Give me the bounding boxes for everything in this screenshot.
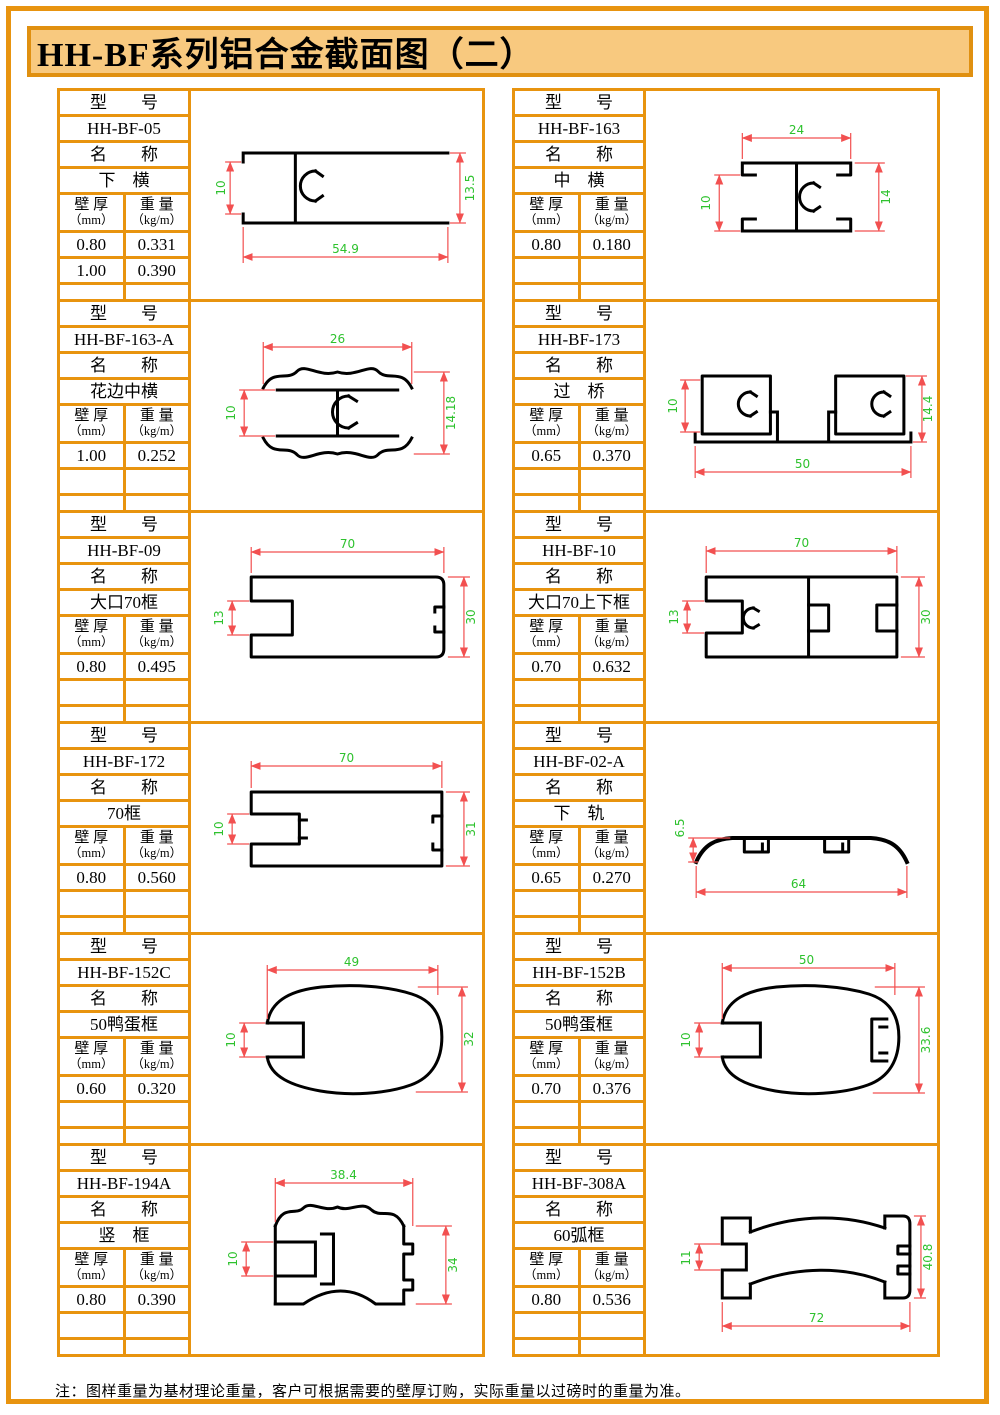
model-value: HH-BF-163-A	[60, 328, 188, 354]
spec-header-row: 壁 厚（mm） 重 量（kg/m）	[60, 406, 188, 444]
cross-section-hh-bf-152c: 49 10 32	[191, 935, 482, 1143]
cross-section-hh-bf-05: 10 13.5 54.9	[191, 91, 482, 299]
profile-cell-hh-bf-09: 型 号 HH-BF-09 名 称 大口70框 壁 厚（mm） 重 量（kg/m）…	[57, 510, 485, 724]
dim-bottom: 72	[809, 1311, 824, 1325]
weight-header: 重 量（kg/m）	[126, 1250, 189, 1285]
data-row: 0.800.331	[60, 233, 188, 259]
model-label: 型 号	[515, 513, 643, 539]
model-label: 型 号	[60, 724, 188, 750]
spec-table: 型 号 HH-BF-10 名 称 大口70上下框 壁 厚（mm） 重 量（kg/…	[515, 513, 646, 721]
spec-header-row: 壁 厚（mm） 重 量（kg/m）	[60, 1250, 188, 1288]
cross-section-hh-bf-172: 70 10 31	[191, 724, 482, 932]
profile-drawing: 6.5 64	[646, 724, 937, 932]
spec-table: 型 号 HH-BF-172 名 称 70框 壁 厚（mm） 重 量（kg/m） …	[60, 724, 191, 932]
dim-right: 14.18	[444, 396, 458, 430]
profile-cell-hh-bf-173: 型 号 HH-BF-173 名 称 过 桥 壁 厚（mm） 重 量（kg/m） …	[512, 299, 940, 513]
profile-cell-hh-bf-163-a: 型 号 HH-BF-163-A 名 称 花边中横 壁 厚（mm） 重 量（kg/…	[57, 299, 485, 513]
profile-cell-hh-bf-163: 型 号 HH-BF-163 名 称 中 横 壁 厚（mm） 重 量（kg/m） …	[512, 88, 940, 302]
spec-header-row: 壁 厚（mm） 重 量（kg/m）	[515, 195, 643, 233]
model-label: 型 号	[515, 935, 643, 961]
cross-section-hh-bf-02-a: 6.5 64	[646, 724, 937, 932]
data-row-empty	[515, 285, 643, 299]
dim-top: 70	[339, 751, 354, 765]
model-label: 型 号	[515, 724, 643, 750]
data-row	[515, 470, 643, 496]
model-value: HH-BF-152C	[60, 961, 188, 987]
data-row: 0.600.320	[60, 1077, 188, 1103]
dim-right: 30	[919, 609, 933, 624]
dim-left: 10	[699, 195, 713, 210]
dim-right: 14.4	[921, 396, 935, 423]
dim-left: 10	[212, 821, 226, 836]
thickness-header: 壁 厚（mm）	[515, 195, 581, 230]
model-value: HH-BF-308A	[515, 1172, 643, 1198]
weight-header: 重 量（kg/m）	[581, 617, 644, 652]
dim-top: 38.4	[330, 1168, 357, 1182]
data-row: 1.000.252	[60, 444, 188, 470]
spec-header-row: 壁 厚（mm） 重 量（kg/m）	[515, 617, 643, 655]
data-row-empty	[60, 918, 188, 932]
name-label: 名 称	[515, 354, 643, 380]
spec-header-row: 壁 厚（mm） 重 量（kg/m）	[60, 195, 188, 233]
name-label: 名 称	[60, 565, 188, 591]
catalog-page: HH-BF系列铝合金截面图（二） 型 号 HH-BF-05 名 称 下 横 壁 …	[0, 0, 1000, 1415]
weight-header: 重 量（kg/m）	[581, 1250, 644, 1285]
data-row-empty	[60, 707, 188, 721]
weight-header: 重 量（kg/m）	[126, 195, 189, 230]
data-row-empty	[60, 1129, 188, 1143]
name-value: 大口70上下框	[515, 591, 643, 617]
dim-left: 10	[679, 1032, 693, 1047]
spec-header-row: 壁 厚（mm） 重 量（kg/m）	[515, 1250, 643, 1288]
dim-top: 50	[799, 953, 814, 967]
dim-left: 10	[224, 405, 238, 420]
cross-section-hh-bf-09: 70 13 30	[191, 513, 482, 721]
data-row	[60, 1314, 188, 1340]
spec-header-row: 壁 厚（mm） 重 量（kg/m）	[60, 1039, 188, 1077]
model-label: 型 号	[60, 935, 188, 961]
cross-section-hh-bf-10: 70 13 30	[646, 513, 937, 721]
data-row	[60, 470, 188, 496]
profile-drawing: 70 13 30	[646, 513, 937, 721]
profile-drawing: 49 10 32	[191, 935, 482, 1143]
cross-section-hh-bf-152b: 50 10 33.6	[646, 935, 937, 1143]
model-value: HH-BF-163	[515, 117, 643, 143]
dim-bottom: 64	[791, 877, 806, 891]
name-value: 70框	[60, 802, 188, 828]
dim-left: 10	[226, 1251, 240, 1266]
profile-cell-hh-bf-194a: 型 号 HH-BF-194A 名 称 竖 框 壁 厚（mm） 重 量（kg/m）…	[57, 1143, 485, 1357]
thickness-header: 壁 厚（mm）	[515, 1250, 581, 1285]
thickness-header: 壁 厚（mm）	[60, 828, 126, 863]
model-value: HH-BF-10	[515, 539, 643, 565]
data-row: 0.800.495	[60, 655, 188, 681]
model-value: HH-BF-152B	[515, 961, 643, 987]
footer-note: 注：图样重量为基材理论重量，客户可根据需要的壁厚订购，实际重量以过磅时的重量为准…	[55, 1380, 691, 1401]
data-row	[60, 1103, 188, 1129]
data-row-empty	[515, 1340, 643, 1354]
spec-table: 型 号 HH-BF-152B 名 称 50鸭蛋框 壁 厚（mm） 重 量（kg/…	[515, 935, 646, 1143]
name-value: 中 横	[515, 169, 643, 195]
name-label: 名 称	[60, 1198, 188, 1224]
data-row: 0.800.536	[515, 1288, 643, 1314]
dim-right: 33.6	[919, 1027, 933, 1054]
spec-table: 型 号 HH-BF-194A 名 称 竖 框 壁 厚（mm） 重 量（kg/m）…	[60, 1146, 191, 1354]
data-row: 0.650.370	[515, 444, 643, 470]
grid-row: 型 号 HH-BF-163-A 名 称 花边中横 壁 厚（mm） 重 量（kg/…	[57, 299, 940, 513]
spec-table: 型 号 HH-BF-05 名 称 下 横 壁 厚（mm） 重 量（kg/m） 0…	[60, 91, 191, 299]
profile-drawing: 24 10 14	[646, 91, 937, 299]
profile-cell-hh-bf-172: 型 号 HH-BF-172 名 称 70框 壁 厚（mm） 重 量（kg/m） …	[57, 721, 485, 935]
name-label: 名 称	[515, 1198, 643, 1224]
name-label: 名 称	[60, 354, 188, 380]
spec-header-row: 壁 厚（mm） 重 量（kg/m）	[515, 1039, 643, 1077]
weight-header: 重 量（kg/m）	[581, 828, 644, 863]
dim-top: 70	[340, 537, 355, 551]
data-row	[515, 1314, 643, 1340]
spec-header-row: 壁 厚（mm） 重 量（kg/m）	[60, 617, 188, 655]
model-label: 型 号	[60, 1146, 188, 1172]
dim-left: 10	[224, 1032, 238, 1047]
profile-drawing: 38.4 10 34	[191, 1146, 482, 1354]
grid-row: 型 号 HH-BF-152C 名 称 50鸭蛋框 壁 厚（mm） 重 量（kg/…	[57, 932, 940, 1146]
data-row-empty	[60, 285, 188, 299]
name-label: 名 称	[515, 776, 643, 802]
profile-cell-hh-bf-308a: 型 号 HH-BF-308A 名 称 60弧框 壁 厚（mm） 重 量（kg/m…	[512, 1143, 940, 1357]
model-value: HH-BF-09	[60, 539, 188, 565]
grid-row: 型 号 HH-BF-05 名 称 下 横 壁 厚（mm） 重 量（kg/m） 0…	[57, 88, 940, 302]
name-label: 名 称	[60, 143, 188, 169]
dim-right: 40.8	[921, 1244, 935, 1271]
model-value: HH-BF-173	[515, 328, 643, 354]
thickness-header: 壁 厚（mm）	[515, 406, 581, 441]
data-row: 0.700.632	[515, 655, 643, 681]
cross-section-hh-bf-194a: 38.4 10 34	[191, 1146, 482, 1354]
profile-cell-hh-bf-02-a: 型 号 HH-BF-02-A 名 称 下 轨 壁 厚（mm） 重 量（kg/m）…	[512, 721, 940, 935]
cross-section-hh-bf-308a: 11 40.8 72	[646, 1146, 937, 1354]
dim-top: 49	[344, 955, 359, 969]
name-value: 50鸭蛋框	[60, 1013, 188, 1039]
dim-left: 11	[679, 1250, 693, 1265]
model-label: 型 号	[515, 1146, 643, 1172]
spec-header-row: 壁 厚（mm） 重 量（kg/m）	[515, 828, 643, 866]
weight-header: 重 量（kg/m）	[126, 1039, 189, 1074]
name-value: 下 横	[60, 169, 188, 195]
dim-bottom: 54.9	[332, 242, 359, 256]
cross-section-hh-bf-163: 24 10 14	[646, 91, 937, 299]
spec-header-row: 壁 厚（mm） 重 量（kg/m）	[60, 828, 188, 866]
profiles-grid: 型 号 HH-BF-05 名 称 下 横 壁 厚（mm） 重 量（kg/m） 0…	[57, 88, 940, 1357]
thickness-header: 壁 厚（mm）	[60, 406, 126, 441]
profile-cell-hh-bf-152b: 型 号 HH-BF-152B 名 称 50鸭蛋框 壁 厚（mm） 重 量（kg/…	[512, 932, 940, 1146]
spec-table: 型 号 HH-BF-173 名 称 过 桥 壁 厚（mm） 重 量（kg/m） …	[515, 302, 646, 510]
profile-cell-hh-bf-10: 型 号 HH-BF-10 名 称 大口70上下框 壁 厚（mm） 重 量（kg/…	[512, 510, 940, 724]
model-value: HH-BF-194A	[60, 1172, 188, 1198]
profile-drawing: 26 10 14.18	[191, 302, 482, 510]
thickness-header: 壁 厚（mm）	[60, 1039, 126, 1074]
weight-header: 重 量（kg/m）	[581, 195, 644, 230]
spec-table: 型 号 HH-BF-163-A 名 称 花边中横 壁 厚（mm） 重 量（kg/…	[60, 302, 191, 510]
spec-table: 型 号 HH-BF-308A 名 称 60弧框 壁 厚（mm） 重 量（kg/m…	[515, 1146, 646, 1354]
data-row: 0.800.180	[515, 233, 643, 259]
grid-row: 型 号 HH-BF-09 名 称 大口70框 壁 厚（mm） 重 量（kg/m）…	[57, 510, 940, 724]
weight-header: 重 量（kg/m）	[126, 828, 189, 863]
name-value: 花边中横	[60, 380, 188, 406]
name-value: 60弧框	[515, 1224, 643, 1250]
thickness-header: 壁 厚（mm）	[515, 828, 581, 863]
data-row-empty	[60, 1340, 188, 1354]
data-row-empty	[515, 707, 643, 721]
name-label: 名 称	[515, 987, 643, 1013]
name-label: 名 称	[515, 565, 643, 591]
model-value: HH-BF-172	[60, 750, 188, 776]
data-row: 0.650.270	[515, 866, 643, 892]
data-row-empty	[60, 496, 188, 510]
profile-drawing: 11 40.8 72	[646, 1146, 937, 1354]
data-row	[60, 892, 188, 918]
name-label: 名 称	[515, 143, 643, 169]
model-label: 型 号	[60, 91, 188, 117]
name-value: 50鸭蛋框	[515, 1013, 643, 1039]
dim-top: 70	[794, 536, 809, 550]
data-row: 1.000.390	[60, 259, 188, 285]
spec-table: 型 号 HH-BF-02-A 名 称 下 轨 壁 厚（mm） 重 量（kg/m）…	[515, 724, 646, 932]
weight-header: 重 量（kg/m）	[581, 1039, 644, 1074]
model-label: 型 号	[515, 91, 643, 117]
data-row: 0.800.390	[60, 1288, 188, 1314]
profile-drawing: 50 10 33.6	[646, 935, 937, 1143]
model-label: 型 号	[60, 302, 188, 328]
grid-row: 型 号 HH-BF-194A 名 称 竖 框 壁 厚（mm） 重 量（kg/m）…	[57, 1143, 940, 1357]
dim-top: 26	[330, 332, 345, 346]
dim-right: 13.5	[463, 175, 477, 202]
name-value: 大口70框	[60, 591, 188, 617]
profile-drawing: 70 13 30	[191, 513, 482, 721]
data-row	[60, 681, 188, 707]
data-row	[515, 681, 643, 707]
name-label: 名 称	[60, 776, 188, 802]
name-value: 下 轨	[515, 802, 643, 828]
dim-left: 13	[212, 610, 226, 625]
dim-left: 10	[666, 398, 680, 413]
data-row-empty	[515, 1129, 643, 1143]
page-title: HH-BF系列铝合金截面图（二）	[27, 26, 973, 77]
model-label: 型 号	[60, 513, 188, 539]
data-row	[515, 1103, 643, 1129]
model-label: 型 号	[515, 302, 643, 328]
dim-top: 24	[789, 123, 804, 137]
thickness-header: 壁 厚（mm）	[60, 617, 126, 652]
data-row-empty	[515, 918, 643, 932]
data-row	[515, 259, 643, 285]
dim-right: 14	[879, 189, 893, 204]
cross-section-hh-bf-173: 10 14.4 50	[646, 302, 937, 510]
dim-right: 32	[462, 1031, 476, 1046]
profile-drawing: 70 10 31	[191, 724, 482, 932]
name-label: 名 称	[60, 987, 188, 1013]
data-row-empty	[515, 496, 643, 510]
thickness-header: 壁 厚（mm）	[60, 1250, 126, 1285]
grid-row: 型 号 HH-BF-172 名 称 70框 壁 厚（mm） 重 量（kg/m） …	[57, 721, 940, 935]
weight-header: 重 量（kg/m）	[126, 617, 189, 652]
spec-header-row: 壁 厚（mm） 重 量（kg/m）	[515, 406, 643, 444]
dim-left: 10	[214, 180, 228, 195]
profile-drawing: 10 13.5 54.9	[191, 91, 482, 299]
profile-drawing: 10 14.4 50	[646, 302, 937, 510]
dim-left: 6.5	[673, 818, 687, 837]
name-value: 竖 框	[60, 1224, 188, 1250]
name-value: 过 桥	[515, 380, 643, 406]
profile-cell-hh-bf-05: 型 号 HH-BF-05 名 称 下 横 壁 厚（mm） 重 量（kg/m） 0…	[57, 88, 485, 302]
data-row: 0.800.560	[60, 866, 188, 892]
data-row: 0.700.376	[515, 1077, 643, 1103]
thickness-header: 壁 厚（mm）	[515, 617, 581, 652]
dim-bottom: 50	[795, 457, 810, 471]
profile-cell-hh-bf-152c: 型 号 HH-BF-152C 名 称 50鸭蛋框 壁 厚（mm） 重 量（kg/…	[57, 932, 485, 1146]
model-value: HH-BF-02-A	[515, 750, 643, 776]
thickness-header: 壁 厚（mm）	[515, 1039, 581, 1074]
cross-section-hh-bf-163-a: 26 10 14.18	[191, 302, 482, 510]
weight-header: 重 量（kg/m）	[126, 406, 189, 441]
spec-table: 型 号 HH-BF-09 名 称 大口70框 壁 厚（mm） 重 量（kg/m）…	[60, 513, 191, 721]
thickness-header: 壁 厚（mm）	[60, 195, 126, 230]
weight-header: 重 量（kg/m）	[581, 406, 644, 441]
dim-right: 34	[446, 1257, 460, 1272]
model-value: HH-BF-05	[60, 117, 188, 143]
dim-right: 31	[464, 821, 478, 836]
spec-table: 型 号 HH-BF-152C 名 称 50鸭蛋框 壁 厚（mm） 重 量（kg/…	[60, 935, 191, 1143]
dim-right: 30	[464, 609, 478, 624]
spec-table: 型 号 HH-BF-163 名 称 中 横 壁 厚（mm） 重 量（kg/m） …	[515, 91, 646, 299]
dim-left: 13	[667, 609, 681, 624]
data-row	[515, 892, 643, 918]
